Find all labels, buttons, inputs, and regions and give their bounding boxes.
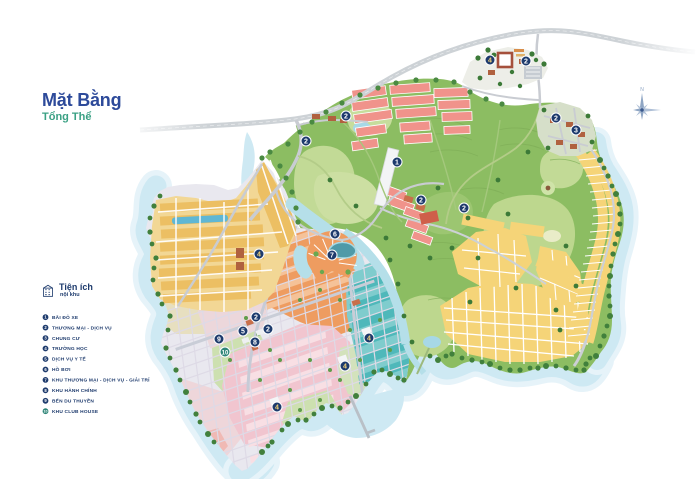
svg-text:8: 8 xyxy=(253,340,257,347)
svg-text:1: 1 xyxy=(395,160,399,167)
svg-text:4: 4 xyxy=(257,252,261,259)
svg-text:4: 4 xyxy=(343,364,347,371)
svg-text:4: 4 xyxy=(488,58,492,65)
svg-text:2: 2 xyxy=(254,315,258,322)
svg-text:BÃI ĐỖ XE: BÃI ĐỖ XE xyxy=(52,314,79,321)
svg-text:7: 7 xyxy=(330,253,334,260)
svg-text:6: 6 xyxy=(333,232,337,239)
svg-text:KHU THƯƠNG MẠI - DỊCH VỤ - GIẢ: KHU THƯƠNG MẠI - DỊCH VỤ - GIẢI TRÍ xyxy=(52,376,150,384)
svg-text:2: 2 xyxy=(344,114,348,121)
svg-text:2: 2 xyxy=(524,59,528,66)
svg-text:CHUNG CƯ: CHUNG CƯ xyxy=(52,336,80,342)
svg-text:TRƯỜNG HỌC: TRƯỜNG HỌC xyxy=(52,344,88,352)
svg-text:4: 4 xyxy=(275,405,279,412)
svg-text:N: N xyxy=(640,87,644,93)
svg-text:2: 2 xyxy=(462,206,466,213)
svg-text:2: 2 xyxy=(304,139,308,146)
svg-text:DỊCH VỤ Y TẾ: DỊCH VỤ Y TẾ xyxy=(52,356,87,363)
svg-text:KHU HÀNH CHÍNH: KHU HÀNH CHÍNH xyxy=(52,386,97,394)
svg-text:3: 3 xyxy=(574,128,578,135)
svg-text:10: 10 xyxy=(222,351,229,357)
svg-text:THƯƠNG MẠI - DỊCH VỤ: THƯƠNG MẠI - DỊCH VỤ xyxy=(52,325,112,331)
svg-text:5: 5 xyxy=(241,329,245,336)
svg-text:2: 2 xyxy=(554,116,558,123)
svg-text:HỒ BƠI: HỒ BƠI xyxy=(52,366,71,373)
svg-text:KHU CLUB HOUSE: KHU CLUB HOUSE xyxy=(52,409,99,415)
svg-text:BẾN DU THUYỀN: BẾN DU THUYỀN xyxy=(52,398,94,405)
svg-text:2: 2 xyxy=(266,327,270,334)
svg-text:4: 4 xyxy=(367,336,371,343)
svg-text:9: 9 xyxy=(217,337,221,344)
svg-text:10: 10 xyxy=(44,410,48,414)
svg-text:2: 2 xyxy=(419,198,423,205)
